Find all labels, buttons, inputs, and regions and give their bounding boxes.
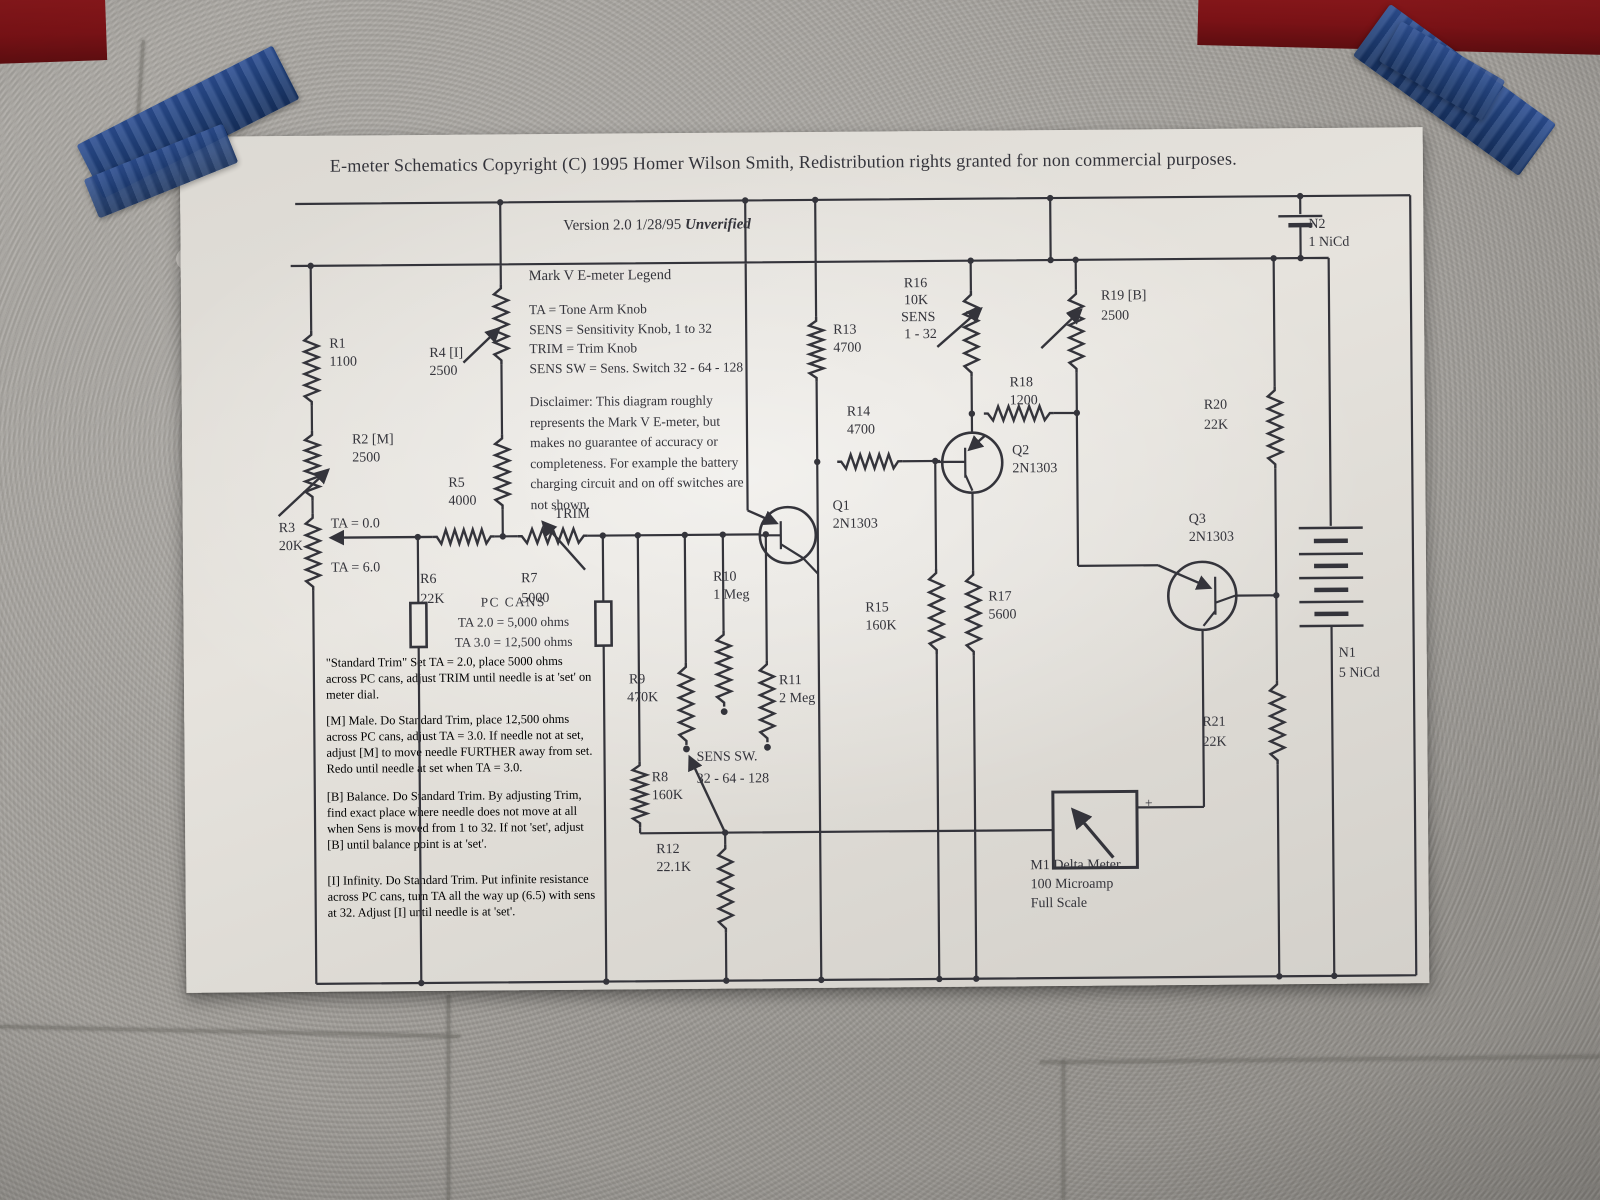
resistor-r16 <box>964 291 979 377</box>
label-r4: R4 [I] <box>429 346 463 361</box>
resistor-r10 <box>717 631 732 707</box>
switch-contact-r9 <box>683 746 690 753</box>
version-text: Version 2.0 1/28/95 <box>563 217 685 234</box>
resistor-r15 <box>929 569 944 654</box>
label-r6: R6 <box>420 572 436 587</box>
pot-arrow-r2 <box>278 470 328 516</box>
component-labels: R1 1100 R2 [M] 2500 R3 20K R4 [I] 2500 R… <box>276 216 1381 878</box>
red-wall-patch-left <box>0 0 107 64</box>
legend-line: SENS SW = Sens. Switch 32 - 64 - 128 <box>529 357 743 378</box>
value-q3: 2N1303 <box>1189 530 1234 545</box>
label-q2: Q2 <box>1012 443 1029 458</box>
label-r11: R11 <box>779 673 802 688</box>
resistor-r13 <box>809 317 824 382</box>
label-r16: R16 <box>904 276 927 291</box>
label-r9: R9 <box>629 672 645 687</box>
disclaimer-line: not shown. <box>530 493 743 515</box>
label-r16-sens: SENS <box>901 310 935 325</box>
label-r19: R19 [B] <box>1101 288 1147 303</box>
meter-plus-terminal: + <box>1145 795 1153 810</box>
wires <box>290 195 1416 984</box>
meter-caption: M1 Delta Meter 100 Microamp Full Scale <box>1030 856 1121 914</box>
label-r21: R21 <box>1202 715 1225 730</box>
switch-contact-r10 <box>721 708 728 715</box>
value-r11: 2 Meg <box>779 691 815 706</box>
pc-cans-line: TA 3.0 = 12,500 ohms <box>430 632 598 653</box>
disclaimer-block: Disclaimer: This diagram roughly represe… <box>530 390 744 515</box>
value-r3: 20K <box>279 539 303 554</box>
legend-heading: Mark V E-meter Legend <box>529 266 743 285</box>
resistor-r14 <box>837 454 902 469</box>
disclaimer-line: completeness. For example the battery <box>530 452 743 474</box>
version-unverified: Unverified <box>685 216 751 233</box>
label-r13: R13 <box>833 323 856 338</box>
legend-line: TRIM = Trim Knob <box>529 337 743 358</box>
battery-n1 <box>1299 528 1364 626</box>
value-r10: 1 Meg <box>713 587 749 602</box>
value-q1: 2N1303 <box>833 516 878 531</box>
sens-switch-arm <box>690 757 726 833</box>
label-r10: R10 <box>713 570 736 585</box>
label-r7: R7 <box>521 571 537 586</box>
label-r1: R1 <box>329 337 345 352</box>
resistor-r20 <box>1268 386 1283 468</box>
resistor-r4 <box>494 284 509 364</box>
value-r1: 1100 <box>329 355 357 370</box>
disclaimer-line: makes no guarantee of accuracy or <box>530 431 743 453</box>
pot-arrow-r4 <box>463 328 499 362</box>
value-r14: 4700 <box>847 422 875 437</box>
label-n1: N1 <box>1339 646 1356 661</box>
pc-cans-heading: PC CANS <box>429 594 597 611</box>
pc-cans-line: TA 2.0 = 5,000 ohms <box>429 612 597 633</box>
disclaimer-line: Disclaimer: This diagram roughly <box>530 390 743 412</box>
pc-can-right <box>595 602 611 646</box>
legend-line: SENS = Sensitivity Knob, 1 to 32 <box>529 318 743 339</box>
circuit-drawing: + R1 1100 <box>180 127 1430 993</box>
label-r14: R14 <box>847 404 870 419</box>
value-r21: 22K <box>1202 735 1226 750</box>
disclaimer-line: charging circuit and on off switches are <box>530 472 743 494</box>
value-r20: 22K <box>1204 418 1228 433</box>
wall-mortar-seam <box>0 1025 460 1038</box>
transistor-q1 <box>748 507 819 575</box>
label-r18: R18 <box>1010 375 1033 390</box>
label-sens-sw-range: 32 - 64 - 128 <box>697 771 769 787</box>
transistor-q2 <box>935 432 1002 493</box>
label-r20: R20 <box>1204 398 1227 413</box>
transistor-q3 <box>1158 562 1237 631</box>
resistor-r9 <box>679 663 694 745</box>
resistor-r3 <box>306 514 321 591</box>
value-r18: 1200 <box>1010 393 1038 408</box>
legend-block: Mark V E-meter Legend TA = Tone Arm Knob… <box>529 266 743 378</box>
sens-arrow-r16 <box>937 309 981 347</box>
label-n2: N2 <box>1308 217 1325 232</box>
value-r13: 4700 <box>833 341 861 356</box>
meter-caption-line: M1 Delta Meter <box>1030 856 1120 876</box>
value-r9: 470K <box>627 690 658 705</box>
wall-mortar-seam <box>1062 1060 1065 1200</box>
label-ta-low: TA = 6.0 <box>331 560 380 575</box>
resistor-r17 <box>966 571 981 656</box>
label-r5: R5 <box>448 476 464 491</box>
label-ta-high: TA = 0.0 <box>331 516 380 531</box>
schematic-paper: E-meter Schematics Copyright (C) 1995 Ho… <box>180 127 1430 993</box>
label-q1: Q1 <box>833 499 850 514</box>
wall-mortar-seam <box>1040 1055 1600 1064</box>
value-q2: 2N1303 <box>1012 461 1057 476</box>
meter-caption-line: Full Scale <box>1031 894 1121 914</box>
photo-of-schematic-on-wall: { "colors":{"wall":"#a3a09b","red":"#7a1… <box>0 0 1600 1200</box>
resistor-r7 <box>518 529 588 544</box>
meter-caption-line: 100 Microamp <box>1030 875 1120 895</box>
value-r12: 22.1K <box>656 860 691 875</box>
resistor-r1 <box>304 331 319 406</box>
meter-needle <box>1073 810 1113 858</box>
value-n2: 1 NiCd <box>1308 235 1349 250</box>
pc-can-left <box>410 603 426 647</box>
resistor-r21 <box>1270 680 1285 764</box>
label-sens-sw: SENS SW. <box>696 749 757 764</box>
resistor-r5 <box>495 434 510 509</box>
value-r2: 2500 <box>352 450 380 465</box>
label-r8: R8 <box>652 770 668 785</box>
value-r8: 160K <box>652 788 683 803</box>
label-r16-range: 1 - 32 <box>904 327 937 342</box>
resistor-r11 <box>760 660 775 742</box>
value-r16: 10K <box>904 293 928 308</box>
resistor-r19 <box>1069 290 1084 373</box>
switch-contact-r11 <box>764 744 771 751</box>
disclaimer-line: represents the Mark V E-meter, but <box>530 411 743 433</box>
label-r3: R3 <box>279 521 295 536</box>
label-r12: R12 <box>656 842 679 857</box>
label-r17: R17 <box>988 589 1011 604</box>
wall-mortar-seam <box>447 995 450 1200</box>
value-r17: 5600 <box>988 607 1016 622</box>
label-r15: R15 <box>865 600 888 615</box>
resistor-r8 <box>633 761 648 827</box>
resistor-r6 <box>433 529 495 543</box>
value-n1: 5 NiCd <box>1339 665 1380 680</box>
label-r2: R2 [M] <box>352 432 394 447</box>
value-r4: 2500 <box>429 364 457 379</box>
version-note: Version 2.0 1/28/95 Unverified <box>563 216 751 234</box>
resistor-r12 <box>718 845 733 933</box>
label-q3: Q3 <box>1189 512 1206 527</box>
value-r5: 4000 <box>448 494 476 509</box>
legend-line: TA = Tone Arm Knob <box>529 298 743 319</box>
value-r15: 160K <box>865 618 896 633</box>
adjust-arrows <box>277 308 1085 836</box>
pc-cans-note: PC CANS TA 2.0 = 5,000 ohms TA 3.0 = 12,… <box>429 594 597 653</box>
value-r19: 2500 <box>1101 308 1129 323</box>
junction-dots <box>307 193 1338 987</box>
